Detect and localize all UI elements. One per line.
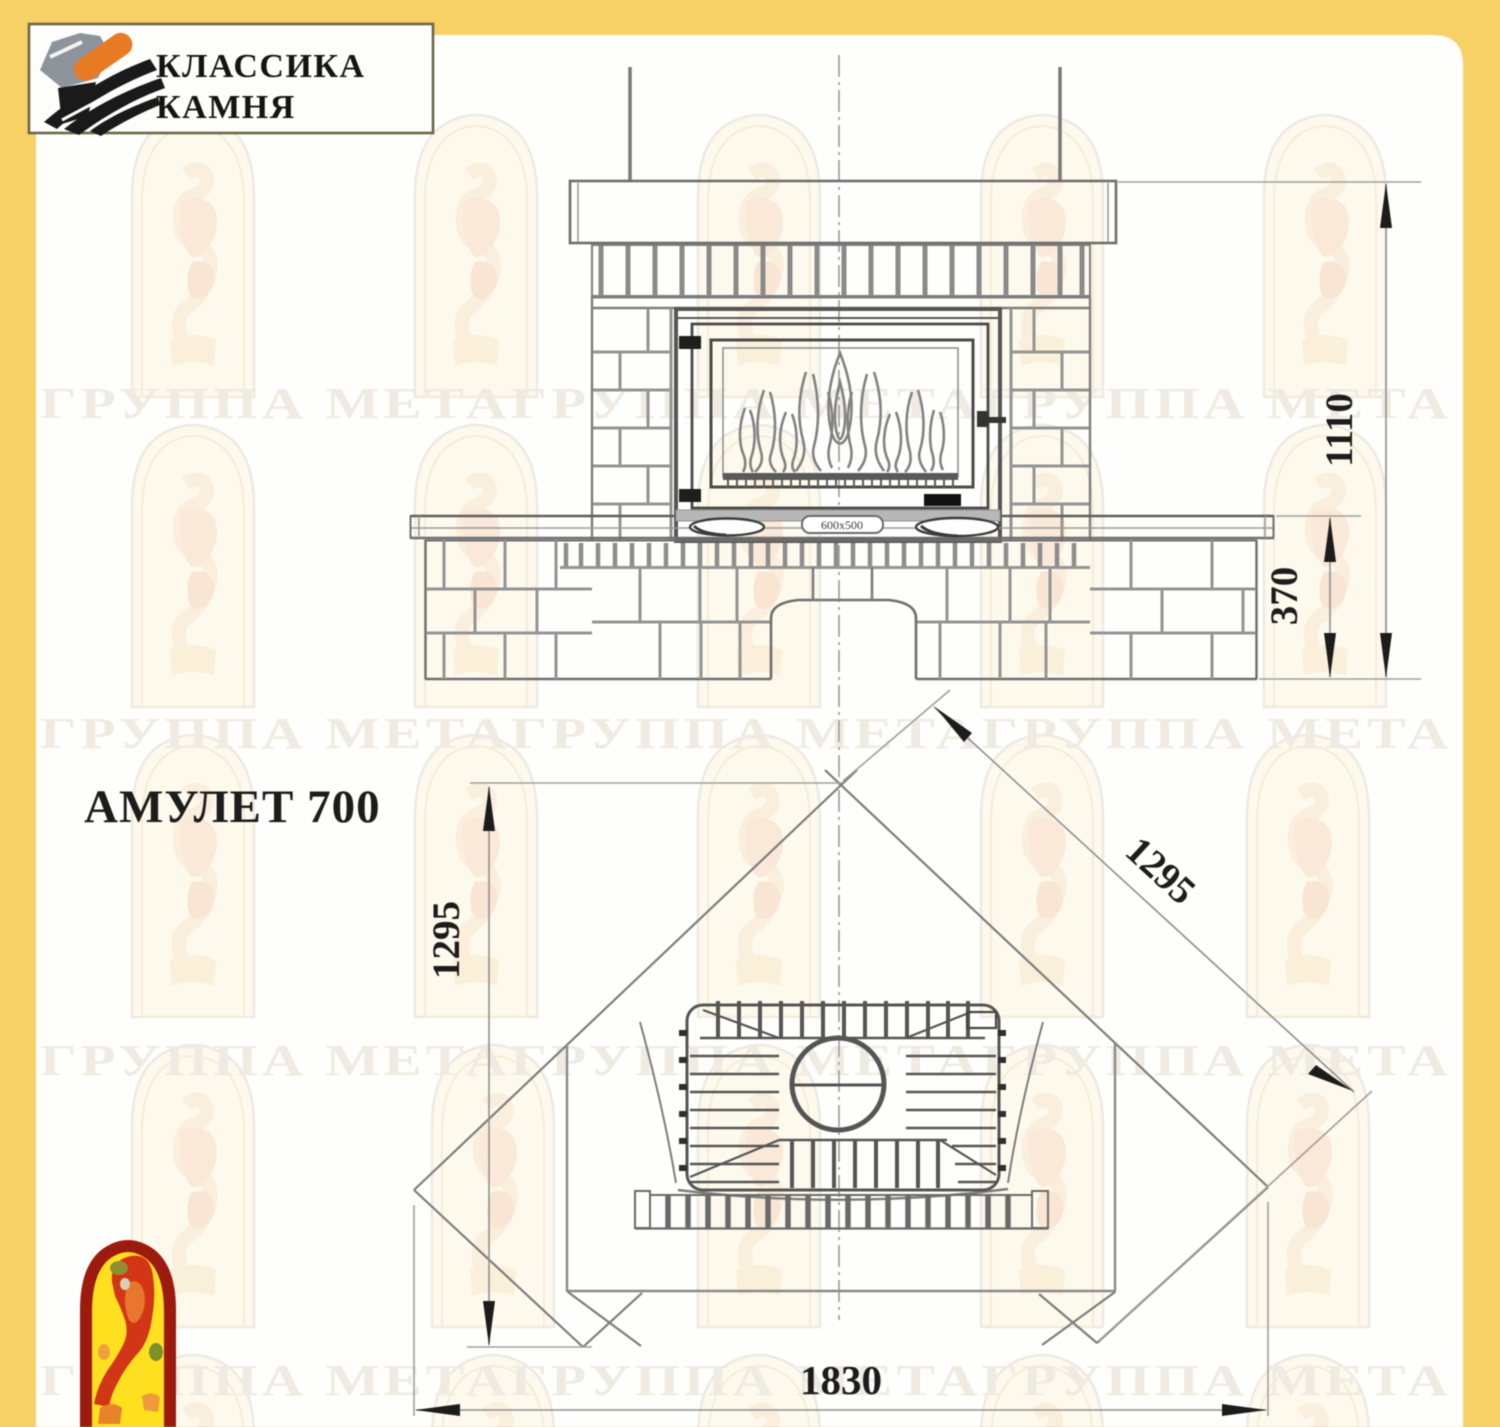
svg-text:ГРУППА МЕТАГРУППА МЕТАГРУППА М: ГРУППА МЕТАГРУППА МЕТАГРУППА МЕТА	[40, 1036, 1452, 1085]
svg-text:КЛАССИКА: КЛАССИКА	[156, 48, 366, 85]
svg-text:АМУЛЕТ 700: АМУЛЕТ 700	[84, 781, 381, 833]
svg-text:600x500: 600x500	[821, 518, 863, 532]
svg-text:1295: 1295	[425, 901, 468, 979]
svg-text:КАМНЯ: КАМНЯ	[156, 89, 296, 126]
svg-text:370: 370	[1263, 567, 1306, 626]
svg-text:ГРУППА МЕТАГРУППА МЕТАГРУППА М: ГРУППА МЕТАГРУППА МЕТАГРУППА МЕТА	[40, 1356, 1452, 1405]
svg-text:ГРУППА МЕТАГРУППА МЕТАГРУППА М: ГРУППА МЕТАГРУППА МЕТАГРУППА МЕТА	[40, 709, 1452, 758]
svg-text:ГРУППА МЕТАГРУППА МЕТАГРУППА М: ГРУППА МЕТАГРУППА МЕТАГРУППА МЕТА	[40, 379, 1452, 428]
svg-text:1110: 1110	[1318, 393, 1361, 467]
svg-text:1830: 1830	[800, 1357, 882, 1403]
